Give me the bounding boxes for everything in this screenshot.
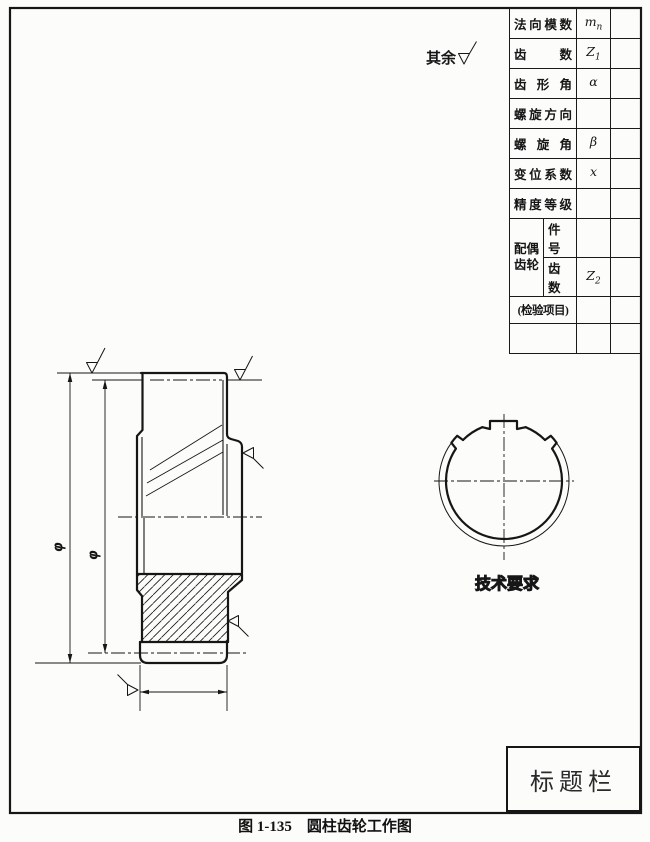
surface-finish-symbol xyxy=(87,348,106,373)
param-value xyxy=(611,297,642,324)
param-value xyxy=(611,39,642,69)
gear-inner-edges xyxy=(142,380,227,573)
param-symbol xyxy=(577,219,611,258)
dimension-lines xyxy=(35,373,227,711)
title-block: 标题栏 xyxy=(506,746,641,812)
param-symbol xyxy=(577,99,611,129)
surface-finish-symbols xyxy=(87,348,264,696)
surface-default-note: 其余 xyxy=(426,42,477,68)
param-label: 螺旋角 xyxy=(510,129,577,159)
param-value xyxy=(611,9,642,39)
left-notch xyxy=(451,436,463,449)
param-symbol: Z1 xyxy=(577,39,611,69)
param-value xyxy=(611,219,642,258)
param-value xyxy=(611,189,642,219)
gear-section-view: φ φ xyxy=(35,348,264,711)
surface-finish-symbol xyxy=(118,675,139,696)
phi-outer-label: φ xyxy=(50,543,66,551)
gear-end-view: 技术要求 xyxy=(434,414,574,593)
figure-caption: 图 1-135 圆柱齿轮工作图 xyxy=(0,815,650,836)
param-symbol xyxy=(577,297,611,324)
drawing-page: { "page": { "caption": "图 1-135 圆柱齿轮工作图"… xyxy=(0,0,650,842)
table-row: 变位系数 x xyxy=(510,159,642,189)
dimension-arrows xyxy=(68,373,227,694)
param-label: 件号 xyxy=(544,219,577,258)
param-symbol: α xyxy=(577,69,611,99)
table-row: 精度等级 xyxy=(510,189,642,219)
param-label: 齿数 xyxy=(510,39,577,69)
param-value xyxy=(611,129,642,159)
mate-gear-group-label: 配偶齿轮 xyxy=(510,219,544,297)
param-label: 法向模数 xyxy=(510,9,577,39)
phi-pitch-label: φ xyxy=(85,551,101,559)
gear-parameter-table: 法向模数 mn 齿数 Z1 齿形角 α 螺旋方向 螺旋角 β 变位系数 x 精度… xyxy=(509,8,642,354)
param-symbol: β xyxy=(577,129,611,159)
table-row: 螺旋角 β xyxy=(510,129,642,159)
title-block-label: 标题栏 xyxy=(530,762,617,797)
param-value xyxy=(611,99,642,129)
section-hatch-area xyxy=(137,574,242,642)
table-row: 配偶齿轮 件号 xyxy=(510,219,642,258)
param-value xyxy=(611,258,642,297)
param-label: 变位系数 xyxy=(510,159,577,189)
param-symbol: Z2 xyxy=(577,258,611,297)
table-row: 螺旋方向 xyxy=(510,99,642,129)
table-row: 法向模数 mn xyxy=(510,9,642,39)
right-notch xyxy=(545,436,557,449)
param-symbol: x xyxy=(577,159,611,189)
table-row xyxy=(510,324,642,354)
param-value xyxy=(611,69,642,99)
param-label: 齿数 xyxy=(544,258,577,297)
param-symbol: mn xyxy=(577,9,611,39)
param-label: 精度等级 xyxy=(510,189,577,219)
helix-direction-lines xyxy=(146,425,223,496)
tech-requirements-label: 技术要求 xyxy=(475,574,540,593)
surface-finish-symbol xyxy=(243,448,264,469)
surface-finish-symbol xyxy=(228,616,249,637)
surface-finish-symbol xyxy=(459,42,477,65)
param-label xyxy=(510,324,577,354)
surface-finish-symbol xyxy=(235,356,253,380)
table-row: (检验项目) xyxy=(510,297,642,324)
param-value xyxy=(611,324,642,354)
param-symbol xyxy=(577,189,611,219)
surface-note-text: 其余 xyxy=(426,49,457,67)
table-row: 齿数 Z1 xyxy=(510,39,642,69)
param-label: 螺旋方向 xyxy=(510,99,577,129)
table-row: 齿形角 α xyxy=(510,69,642,99)
param-label: 齿形角 xyxy=(510,69,577,99)
inspection-items-label: (检验项目) xyxy=(510,297,577,324)
param-symbol xyxy=(577,324,611,354)
param-value xyxy=(611,159,642,189)
